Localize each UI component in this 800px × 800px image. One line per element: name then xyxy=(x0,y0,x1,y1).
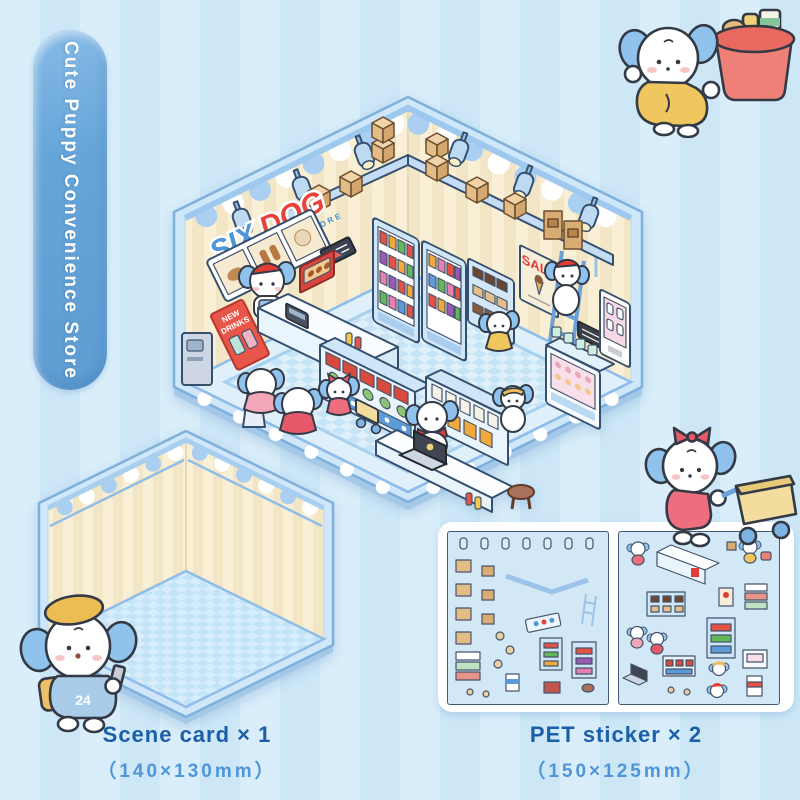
atm-machine xyxy=(182,333,212,385)
cart-wheel xyxy=(773,522,789,538)
mini-dots xyxy=(467,689,489,697)
sticker-sheet-2 xyxy=(618,531,780,705)
shopping-basket xyxy=(714,10,794,100)
product-showcase-page: { "badge": { "text": "Cute Puppy Conveni… xyxy=(0,0,800,800)
drink-fridge xyxy=(422,240,466,362)
sticker-sheet-1 xyxy=(447,531,609,705)
basket-rim xyxy=(714,26,794,52)
basket-item-pack-band xyxy=(760,18,780,26)
puppy-head xyxy=(638,28,698,88)
puppy-foot xyxy=(678,125,698,137)
puppy-dress xyxy=(667,490,711,530)
mini-buns xyxy=(494,632,514,668)
vertical-title-text: Cute Puppy Convenience Store xyxy=(59,41,81,380)
mini-store-sign xyxy=(525,613,561,633)
puppy-nose xyxy=(688,474,691,477)
mini-sandwich-stack xyxy=(745,584,767,609)
mini-stool xyxy=(582,684,594,692)
pet-sticker-caption: PET sticker × 2 （150×125mm） xyxy=(438,722,794,783)
puppy-foot xyxy=(691,534,709,546)
mini-freezer xyxy=(743,650,767,668)
mini-milk-carton xyxy=(747,676,762,696)
mini-counter-number xyxy=(691,568,699,577)
puppy-with-beret-illustration: 24 xyxy=(16,582,156,734)
mini-shelf xyxy=(506,576,588,592)
puppy-foot xyxy=(58,717,78,731)
stool xyxy=(508,485,534,509)
mini-drink-fridge xyxy=(707,618,735,658)
cart-wheel xyxy=(740,528,756,544)
puppy-with-cart-illustration xyxy=(638,420,800,552)
mini-sandwich-stack xyxy=(456,652,480,680)
puppy-left-paw xyxy=(625,66,641,82)
mini-sale-poster xyxy=(719,588,733,606)
pet-sticker-label: PET sticker × 2 xyxy=(438,722,794,748)
mini-snack-shelf xyxy=(647,592,685,616)
condiment-bottle xyxy=(466,493,472,505)
store-illustration: SIXDOG CONVENIENCE STORE NEW DRINKS xyxy=(168,93,650,515)
puppy-foot xyxy=(84,718,104,732)
pet-sticker-size: （150×125mm） xyxy=(438,756,794,783)
mini-milk-band xyxy=(506,679,519,684)
vest-number: 24 xyxy=(75,692,91,708)
mini-boxes xyxy=(456,560,494,644)
vertical-title-badge: Cute Puppy Convenience Store xyxy=(33,30,107,390)
puppy-skirt xyxy=(244,392,278,413)
puppy-skirt xyxy=(280,412,316,434)
mini-puppy-pair xyxy=(627,627,667,655)
puppy-paw xyxy=(106,679,121,694)
mini-visor-puppy xyxy=(709,663,729,676)
puppy-bow-knot xyxy=(688,433,697,442)
scene-card-size: （140×130mm） xyxy=(33,756,341,783)
drink-fridge xyxy=(373,217,419,344)
puppy-right-paw xyxy=(703,82,719,98)
mini-laptop xyxy=(623,664,647,685)
milk-vending-machine xyxy=(600,289,630,368)
condiment-bottle xyxy=(475,497,481,509)
puppy-foot xyxy=(674,532,692,544)
mini-dots xyxy=(668,687,690,695)
mini-ladder xyxy=(582,594,596,626)
puppy-mouth xyxy=(75,653,80,658)
mini-fridges xyxy=(540,638,596,678)
condiment-bottle xyxy=(355,337,361,349)
puppy-nose xyxy=(666,67,670,71)
mini-gondola xyxy=(663,656,695,676)
mini-red-box xyxy=(544,682,560,693)
puppy-head xyxy=(663,439,717,493)
mini-spotlight-row xyxy=(460,538,593,549)
mini-cap-puppy xyxy=(707,683,727,697)
puppy-foot xyxy=(654,123,674,135)
